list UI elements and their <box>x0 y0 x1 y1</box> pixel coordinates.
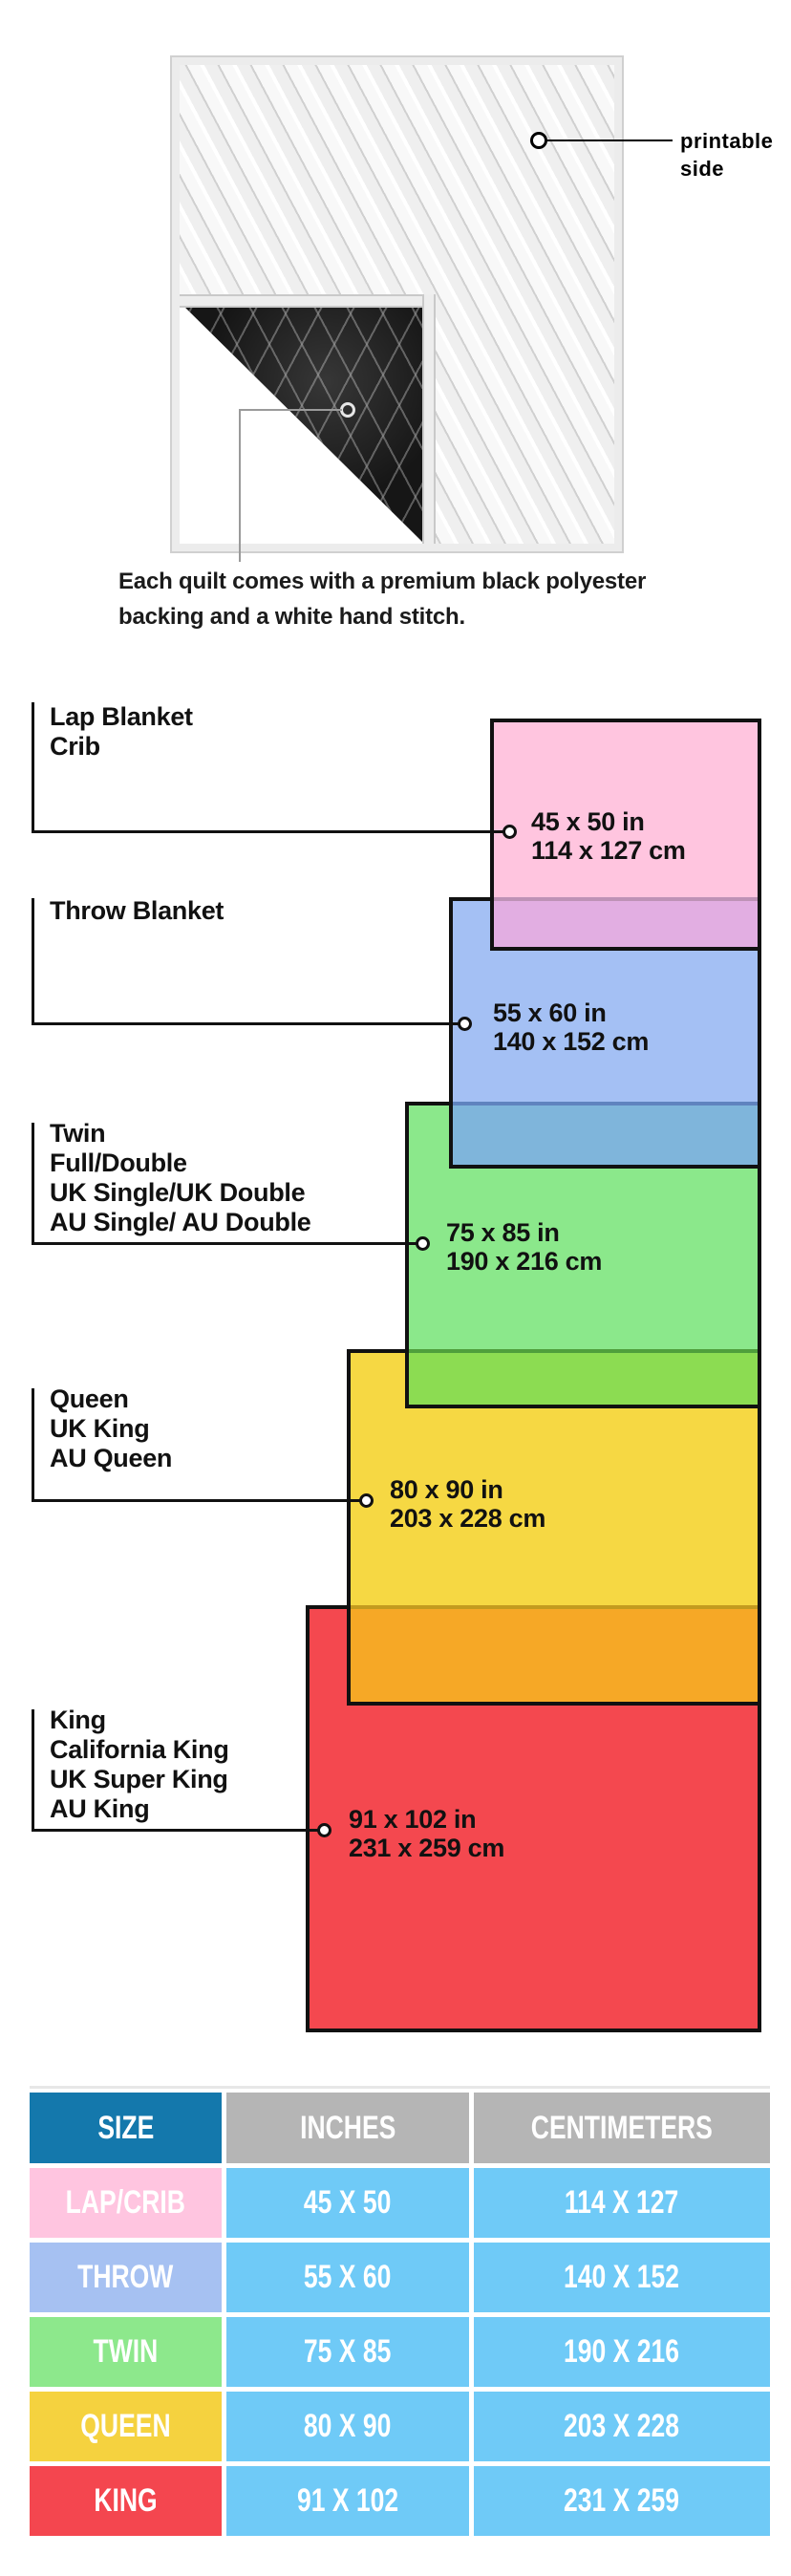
label-twin-line3: UK Single/UK Double <box>50 1178 311 1208</box>
table-row-queen-label: QUEEN <box>30 2392 222 2461</box>
table-row-king-inches: 91 X 102 <box>226 2466 469 2536</box>
overlap-lap-throw <box>494 897 758 947</box>
table-row-lap-inches-text: 45 X 50 <box>304 2184 391 2222</box>
table-row-queen-cm: 203 X 228 <box>474 2392 770 2461</box>
label-king-line3: UK Super King <box>50 1765 229 1794</box>
connector-king <box>32 1829 321 1832</box>
backing-callout-line-vertical <box>239 409 241 562</box>
table-header-centimeters: CENTIMETERS <box>474 2093 770 2163</box>
dot-queen-icon <box>359 1493 374 1508</box>
label-queen-line3: AU Queen <box>50 1444 172 1473</box>
table-row-twin-inches: 75 X 85 <box>226 2317 469 2387</box>
table-row-lap-inches: 45 X 50 <box>226 2168 469 2238</box>
dims-twin-inches: 75 x 85 in <box>446 1218 602 1247</box>
dims-king-inches: 91 x 102 in <box>349 1805 504 1834</box>
dims-queen-inches: 80 x 90 in <box>390 1475 545 1504</box>
label-group-queen: Queen UK King AU Queen <box>50 1385 172 1473</box>
dims-lap: 45 x 50 in 114 x 127 cm <box>531 807 686 865</box>
connector-queen <box>32 1499 363 1502</box>
label-group-lap: Lap Blanket Crib <box>50 702 193 762</box>
table-row-twin-label: TWIN <box>30 2317 222 2387</box>
label-king-line4: AU King <box>50 1794 229 1824</box>
size-guide-infographic: printable side Each quilt comes with a p… <box>0 0 791 2576</box>
dims-throw-cm: 140 x 152 cm <box>493 1027 649 1056</box>
table-row-throw-cm-text: 140 X 152 <box>565 2259 680 2296</box>
table-row-throw-inches-text: 55 X 60 <box>304 2259 391 2296</box>
dot-lap-icon <box>502 825 517 839</box>
printable-side-callout-line <box>546 140 673 141</box>
label-group-throw: Throw Blanket <box>50 896 224 926</box>
table-row-king-label: KING <box>30 2466 222 2536</box>
table-row-twin-cm-text: 190 X 216 <box>565 2333 680 2371</box>
label-queen-line1: Queen <box>50 1385 172 1414</box>
label-king-line1: King <box>50 1706 229 1735</box>
printable-side-label-line2: side <box>680 155 773 182</box>
table-row-twin-cm: 190 X 216 <box>474 2317 770 2387</box>
overlap-throw-twin <box>453 1102 758 1165</box>
table-row-throw-inches: 55 X 60 <box>226 2243 469 2312</box>
dot-throw-icon <box>458 1017 472 1031</box>
dot-king-icon <box>317 1823 331 1837</box>
dims-king: 91 x 102 in 231 x 259 cm <box>349 1805 504 1862</box>
tick-king <box>32 1709 34 1832</box>
backing-caption-line2: backing and a white hand stitch. <box>118 599 646 634</box>
table-row-king-cm-text: 231 X 259 <box>565 2482 680 2520</box>
table-header-inches: INCHES <box>226 2093 469 2163</box>
table-row-lap-cm: 114 X 127 <box>474 2168 770 2238</box>
table-row-king-inches-text: 91 X 102 <box>297 2482 398 2520</box>
dims-lap-inches: 45 x 50 in <box>531 807 686 836</box>
table-row-queen-inches-text: 80 X 90 <box>304 2408 391 2445</box>
backing-caption-line1: Each quilt comes with a premium black po… <box>118 564 646 599</box>
dot-twin-icon <box>416 1236 430 1251</box>
overlap-twin-queen <box>409 1349 758 1405</box>
label-queen-line2: UK King <box>50 1414 172 1444</box>
table-header-size-text: SIZE <box>97 2110 154 2147</box>
label-group-king: King California King UK Super King AU Ki… <box>50 1706 229 1824</box>
label-twin-line2: Full/Double <box>50 1148 311 1178</box>
backing-marker-icon <box>340 402 355 418</box>
dims-throw: 55 x 60 in 140 x 152 cm <box>493 998 649 1056</box>
tick-lap <box>32 702 34 833</box>
label-lap-line1: Lap Blanket <box>50 702 193 732</box>
printable-side-label: printable side <box>680 127 773 182</box>
label-twin-line1: Twin <box>50 1119 311 1148</box>
table-row-king-cm: 231 X 259 <box>474 2466 770 2536</box>
printable-side-marker-icon <box>530 132 547 149</box>
dims-twin: 75 x 85 in 190 x 216 cm <box>446 1218 602 1276</box>
label-throw-line1: Throw Blanket <box>50 896 224 926</box>
table-header-inches-text: INCHES <box>300 2110 395 2147</box>
connector-lap <box>32 830 506 833</box>
table-row-throw-label: THROW <box>30 2243 222 2312</box>
table-header-centimeters-text: CENTIMETERS <box>531 2110 713 2147</box>
table-row-twin-inches-text: 75 X 85 <box>304 2333 391 2371</box>
size-table: SIZE INCHES CENTIMETERS LAP/CRIB 45 X 50… <box>30 2093 770 2536</box>
table-row-twin-label-text: TWIN <box>94 2333 159 2371</box>
table-row-queen-label-text: QUEEN <box>80 2408 170 2445</box>
printable-side-label-line1: printable <box>680 127 773 155</box>
connector-twin <box>32 1242 419 1245</box>
label-group-twin: Twin Full/Double UK Single/UK Double AU … <box>50 1119 311 1237</box>
label-king-line2: California King <box>50 1735 229 1765</box>
tick-queen <box>32 1388 34 1502</box>
table-row-throw-cm: 140 X 152 <box>474 2243 770 2312</box>
table-row-lap-cm-text: 114 X 127 <box>565 2184 678 2222</box>
dims-throw-inches: 55 x 60 in <box>493 998 649 1027</box>
dims-king-cm: 231 x 259 cm <box>349 1834 504 1862</box>
table-row-queen-cm-text: 203 X 228 <box>565 2408 680 2445</box>
label-twin-line4: AU Single/ AU Double <box>50 1208 311 1237</box>
table-row-king-label-text: KING <box>94 2482 157 2520</box>
dims-queen-cm: 203 x 228 cm <box>390 1504 545 1533</box>
table-row-lap-label: LAP/CRIB <box>30 2168 222 2238</box>
overlap-queen-king <box>351 1605 758 1702</box>
dims-queen: 80 x 90 in 203 x 228 cm <box>390 1475 545 1533</box>
backing-caption: Each quilt comes with a premium black po… <box>118 564 646 634</box>
table-row-throw-label-text: THROW <box>77 2259 173 2296</box>
backing-callout-line-horizontal <box>239 409 342 411</box>
tick-throw <box>32 898 34 1025</box>
tick-twin <box>32 1123 34 1245</box>
connector-throw <box>32 1022 461 1025</box>
dims-twin-cm: 190 x 216 cm <box>446 1247 602 1276</box>
quilt-binding-horizontal <box>180 294 436 308</box>
label-lap-line2: Crib <box>50 732 193 762</box>
table-top-divider <box>30 2086 770 2089</box>
table-row-queen-inches: 80 X 90 <box>226 2392 469 2461</box>
table-header-size: SIZE <box>30 2093 222 2163</box>
dims-lap-cm: 114 x 127 cm <box>531 836 686 865</box>
quilt-binding-vertical <box>422 294 436 544</box>
table-row-lap-label-text: LAP/CRIB <box>66 2184 185 2222</box>
